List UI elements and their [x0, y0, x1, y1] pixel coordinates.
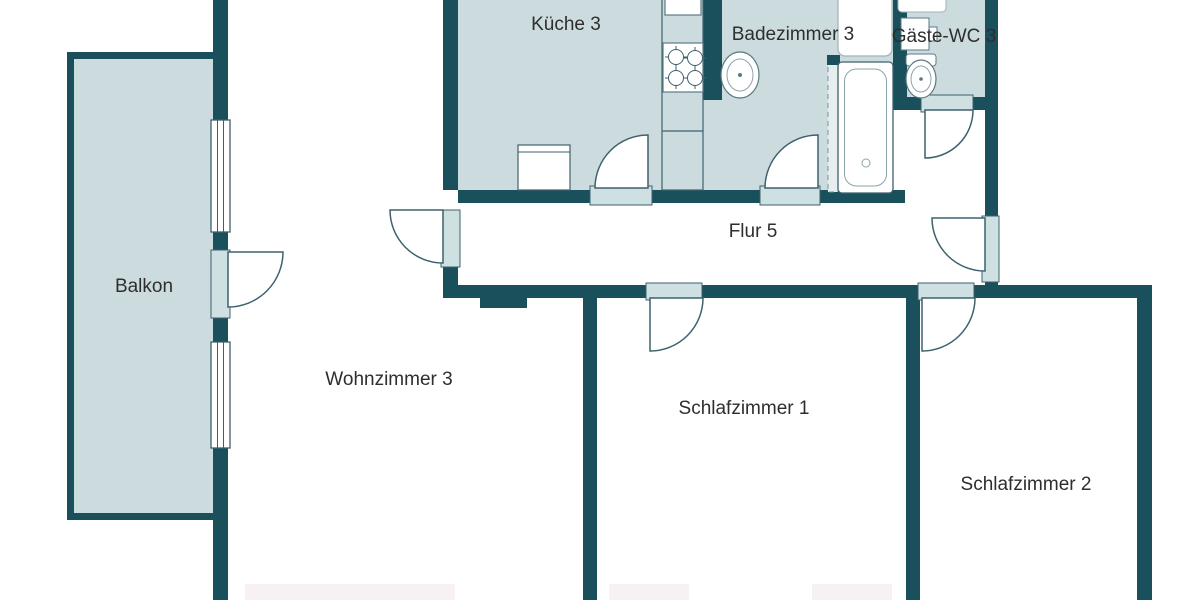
label-kueche: Küche 3 [531, 14, 601, 35]
balcony-left-wall [67, 52, 74, 520]
balcony-window-upper [211, 120, 230, 232]
label-schlafzimmer2: Schlafzimmer 2 [961, 474, 1092, 495]
shower-screen-post [827, 55, 840, 65]
label-gaeste-wc: Gäste-WC 3 [892, 26, 997, 47]
bathtub [838, 62, 893, 193]
stove [663, 43, 706, 92]
outer-left-wall [213, 0, 228, 120]
window-mark [609, 584, 689, 600]
bedroom1-bedroom2-wall [906, 298, 920, 600]
label-schlafzimmer1: Schlafzimmer 1 [679, 398, 810, 419]
kitchen-left-wall [443, 0, 458, 190]
label-badezimmer: Badezimmer 3 [732, 24, 855, 45]
floor-plan-canvas: Küche 3 Badezimmer 3 Gäste-WC 3 Flur 5 B… [0, 0, 1200, 600]
wc-bottom-wall [893, 97, 923, 110]
kitchen-appliance [518, 145, 570, 190]
livingroom-bedroom1-wall [583, 298, 597, 600]
label-wohnzimmer: Wohnzimmer 3 [325, 369, 452, 390]
outer-right-wall-bottom [1137, 285, 1152, 600]
toilet [906, 54, 936, 98]
kitchen-bathroom-wall [703, 0, 722, 100]
balcony-bottom-wall [67, 513, 213, 520]
label-balkon: Balkon [115, 276, 173, 297]
hall-livingroom-door-sill [441, 210, 460, 267]
hall-top-wall [458, 190, 590, 203]
wall-pier [480, 298, 527, 308]
wc-top-fixture [898, 0, 946, 12]
bathroom-sink [721, 52, 759, 98]
outer-left-wall [213, 232, 228, 252]
bedroom2-top-wall [972, 285, 1152, 298]
outer-left-wall [213, 448, 228, 600]
balcony-window-lower [211, 342, 230, 448]
hall-bottom-wall [443, 285, 648, 298]
balcony-door-sill [211, 250, 230, 318]
shower-screen [828, 62, 838, 192]
kitchen-counter [662, 0, 703, 190]
window-mark [245, 584, 455, 600]
floor-plan: Küche 3 Badezimmer 3 Gäste-WC 3 Flur 5 B… [0, 0, 1200, 600]
hall-bottom-wall [700, 285, 920, 298]
label-flur: Flur 5 [729, 221, 778, 242]
kitchen-sink [665, 0, 701, 15]
hall-top-wall [652, 190, 760, 203]
bathroom-door-sill [760, 186, 820, 205]
window-mark [812, 584, 892, 600]
kitchen-door-sill [590, 186, 652, 205]
outer-left-wall [213, 318, 228, 342]
balcony-top-wall [67, 52, 213, 59]
